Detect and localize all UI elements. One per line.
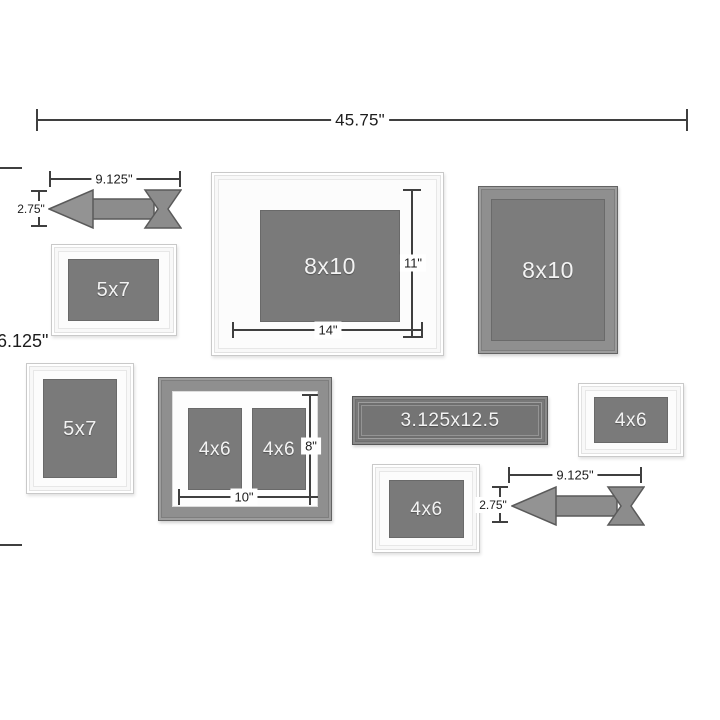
mat-width-dim-label: 14" xyxy=(314,322,341,339)
mat-width-dim-tick-right xyxy=(421,322,423,338)
arrow-bottom-height-dim-label: 2.75" xyxy=(475,497,511,513)
overall-width-dim-label: 45.75" xyxy=(331,110,389,131)
arrow-left-icon xyxy=(48,188,182,230)
arrow-top-width-dim-label: 9.125" xyxy=(91,171,136,188)
frame-collage-right-size-label: 4x6 xyxy=(263,440,295,459)
collage-height-dim-tbar-top xyxy=(302,394,318,396)
frame-4x6-right-size-label: 4x6 xyxy=(615,411,647,430)
frame-4x6-bottom: 4x6 xyxy=(372,464,480,553)
frame-5x7-landscape: 5x7 xyxy=(51,244,177,336)
decor-arrow-bottom xyxy=(511,485,645,527)
arrow-top-height-dim-tbar-bottom xyxy=(31,225,47,227)
frame-collage: 4x6 4x6 8" 10" xyxy=(158,377,332,521)
collage-height-dim-label: 8" xyxy=(301,438,321,455)
frame-5x7-portrait-opening: 5x7 xyxy=(43,379,117,478)
frame-4x6-right: 4x6 xyxy=(578,383,684,457)
frame-collage-opening-right: 4x6 xyxy=(252,408,306,490)
arrow-bottom-height-dim-tbar-top xyxy=(492,486,508,488)
arrow-bottom-width-dim-tick-left xyxy=(508,467,510,483)
collage-width-dim-label: 10" xyxy=(230,489,257,506)
overall-width-dim-tick-left xyxy=(36,109,38,131)
arrow-top-width-dim-tick-right xyxy=(179,171,181,187)
overall-width-dim-tick-right xyxy=(686,109,688,131)
frame-8x10-matted-size-label: 8x10 xyxy=(304,255,356,278)
frame-ledge-size-label: 3.125x12.5 xyxy=(400,411,499,430)
frame-4x6-bottom-opening: 4x6 xyxy=(389,480,464,538)
arrow-top-width-dim-tick-left xyxy=(49,171,51,187)
frame-8x10-matted: 8x10 11" 14" xyxy=(211,172,444,356)
collage-width-dim-tick-right xyxy=(309,489,311,505)
arrow-left-icon xyxy=(511,485,645,527)
arrow-top-height-dim-tbar-top xyxy=(31,190,47,192)
frame-8x10-gray: 8x10 xyxy=(478,186,618,354)
frame-4x6-right-opening: 4x6 xyxy=(594,397,668,443)
overall-height-dim-tick-bottom xyxy=(0,544,22,546)
mat-height-dim-label: 11" xyxy=(400,255,426,272)
frame-ledge: 3.125x12.5 xyxy=(352,396,548,445)
frame-5x7-portrait: 5x7 xyxy=(26,363,134,494)
frame-4x6-bottom-size-label: 4x6 xyxy=(410,500,442,519)
mat-height-dim-tbar-top xyxy=(403,189,421,191)
arrow-top-height-dim-label: 2.75" xyxy=(13,201,49,217)
mat-width-dim-tick-left xyxy=(232,322,234,338)
frame-8x10-matted-opening: 8x10 xyxy=(260,210,400,322)
overall-height-dim-label: 6.125" xyxy=(0,330,50,352)
dimension-diagram: 45.75" 6.125" 9.125" 2.75" 5x7 8x10 11" xyxy=(0,0,720,720)
frame-ledge-panel: 3.125x12.5 xyxy=(358,402,542,439)
collage-width-dim-tick-left xyxy=(178,489,180,505)
arrow-bottom-height-dim-tbar-bottom xyxy=(492,521,508,523)
mat-height-dim-tbar-bottom xyxy=(403,336,421,338)
arrow-bottom-width-dim-tick-right xyxy=(640,467,642,483)
overall-height-dim-tick-top xyxy=(0,167,22,169)
arrow-bottom-width-dim-label: 9.125" xyxy=(552,467,597,484)
frame-collage-opening-left: 4x6 xyxy=(188,408,242,490)
frame-8x10-gray-size-label: 8x10 xyxy=(522,259,574,282)
frame-5x7-landscape-opening: 5x7 xyxy=(68,259,159,321)
frame-8x10-gray-opening: 8x10 xyxy=(491,199,605,341)
decor-arrow-top xyxy=(48,188,182,230)
frame-collage-left-size-label: 4x6 xyxy=(199,440,231,459)
frame-5x7-portrait-size-label: 5x7 xyxy=(63,419,97,439)
frame-5x7-landscape-size-label: 5x7 xyxy=(97,280,131,300)
